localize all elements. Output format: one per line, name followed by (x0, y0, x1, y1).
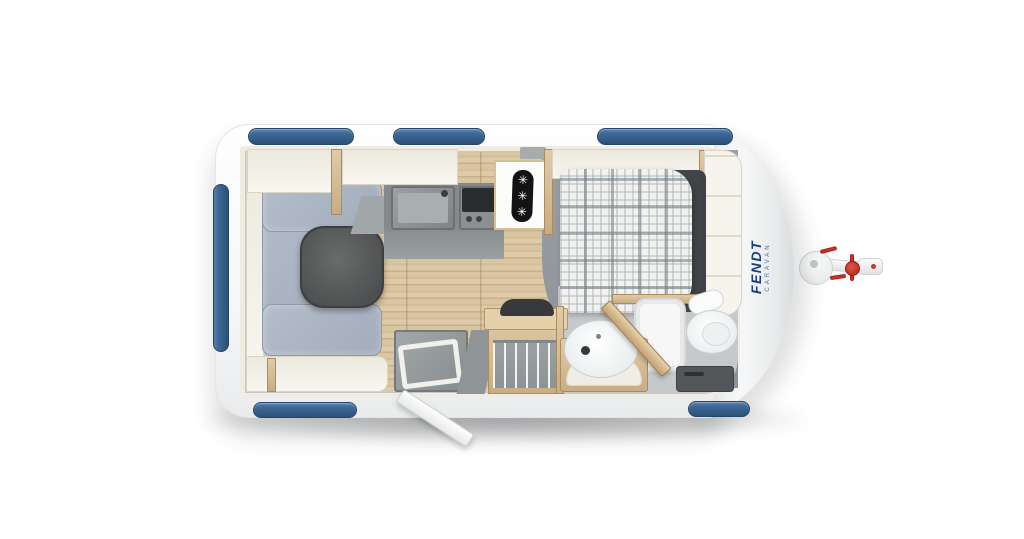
dinette-table (300, 226, 384, 308)
snowflake-icon: ✳ (517, 206, 527, 218)
hitch-pivot-hole (810, 260, 818, 268)
kitchen-sink-basin (398, 193, 448, 223)
caravan-floorplan: ✳ ✳ ✳ FENDT CARAVAN (0, 0, 1024, 539)
hitch-coupler-dot (871, 264, 876, 269)
bed-mattress-plaid (560, 169, 692, 313)
wardrobe-sink-bowl (500, 299, 554, 316)
window-top-kitchen (393, 128, 485, 145)
lounge-cushion-bottom (262, 304, 382, 356)
fridge: ✳ ✳ ✳ (494, 160, 548, 230)
window-bottom-rear (253, 402, 357, 418)
brand-logo-sub: CARAVAN (764, 232, 772, 302)
kitchen-hob-knob (466, 216, 472, 222)
washbasin-drain (581, 346, 590, 355)
window-rear-wall (213, 184, 229, 352)
toilet-seat (702, 322, 730, 346)
kitchen-hob-panel (462, 188, 498, 212)
cabinet-wood-divider (331, 149, 342, 215)
wardrobe-hanger-rods (493, 340, 559, 388)
fridge-vent (520, 147, 546, 159)
hitch-red-bar-bottom (830, 274, 846, 280)
window-top-rear (248, 128, 354, 145)
window-top-bed (597, 128, 733, 145)
entry-step-frame (398, 339, 463, 390)
hitch-red-bar-top (820, 246, 837, 254)
window-bottom-front (688, 401, 750, 417)
kitchen-faucet (441, 190, 448, 197)
overhead-cabinet-rear (247, 149, 333, 193)
washbasin-faucet (596, 334, 601, 339)
brand-logo: FENDT (747, 225, 765, 309)
lounge-wood-divider-front (267, 358, 276, 392)
snowflake-icon: ✳ (518, 174, 528, 186)
jockey-knob (845, 261, 860, 276)
overhead-cabinet-kitchen (342, 149, 458, 185)
kitchen-hob-knob-2 (476, 216, 482, 222)
bathroom-mat (676, 366, 734, 392)
bathroom-mat-handle (684, 372, 704, 376)
fridge-freezer-badge: ✳ ✳ ✳ (511, 170, 534, 223)
hitch-pivot (799, 251, 833, 285)
snowflake-icon: ✳ (517, 190, 527, 202)
